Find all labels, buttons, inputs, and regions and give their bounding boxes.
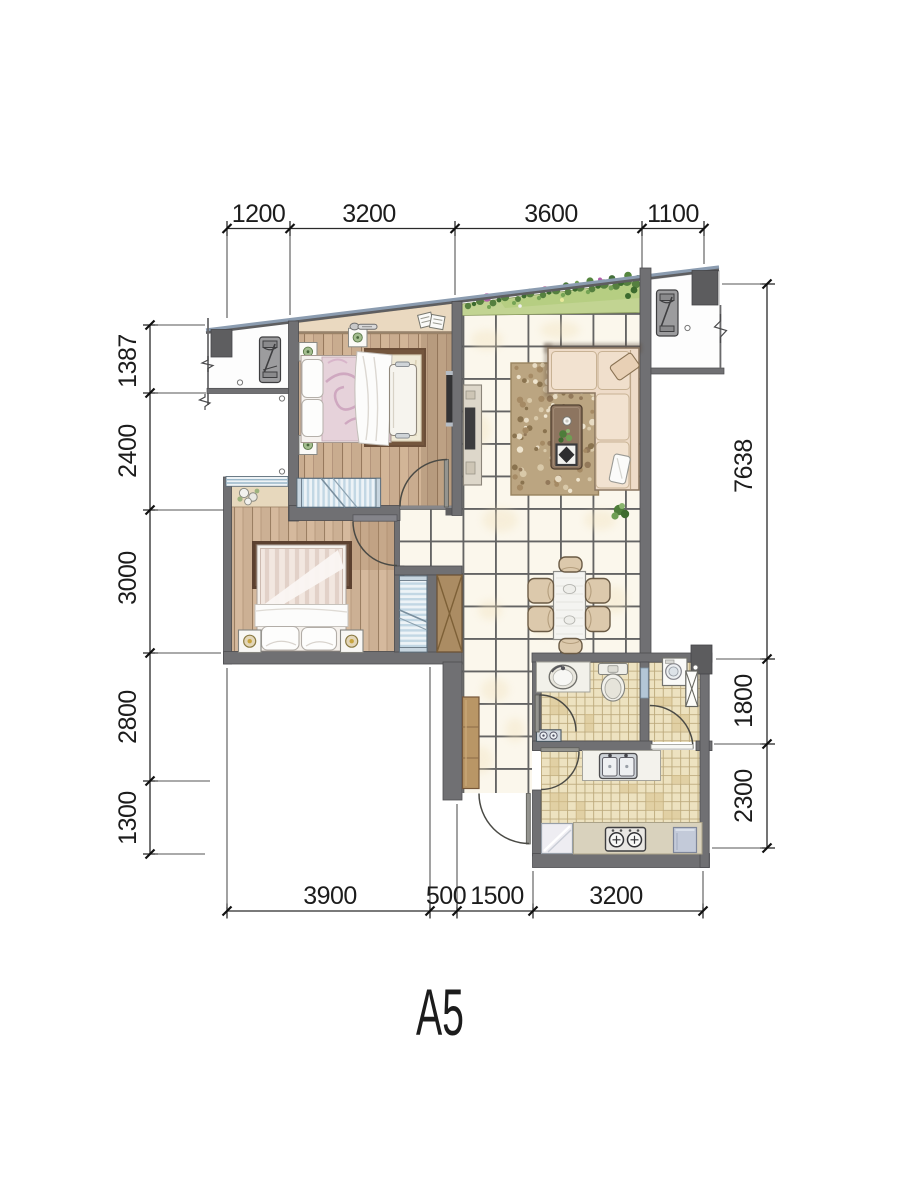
svg-text:500: 500 <box>426 882 466 910</box>
svg-text:1200: 1200 <box>232 200 286 228</box>
svg-text:1800: 1800 <box>730 674 758 728</box>
svg-text:3200: 3200 <box>589 882 643 910</box>
svg-text:2800: 2800 <box>114 690 142 744</box>
svg-text:1300: 1300 <box>114 791 142 845</box>
svg-text:1500: 1500 <box>470 882 524 910</box>
svg-text:7638: 7638 <box>730 439 758 493</box>
svg-text:2400: 2400 <box>114 424 142 478</box>
svg-text:1387: 1387 <box>114 334 142 388</box>
svg-text:3200: 3200 <box>342 200 396 228</box>
svg-text:A5: A5 <box>416 975 464 1049</box>
svg-text:3900: 3900 <box>303 882 357 910</box>
svg-text:2300: 2300 <box>730 769 758 823</box>
svg-text:1100: 1100 <box>647 200 699 228</box>
svg-text:3600: 3600 <box>524 200 578 228</box>
svg-text:3000: 3000 <box>114 551 142 605</box>
